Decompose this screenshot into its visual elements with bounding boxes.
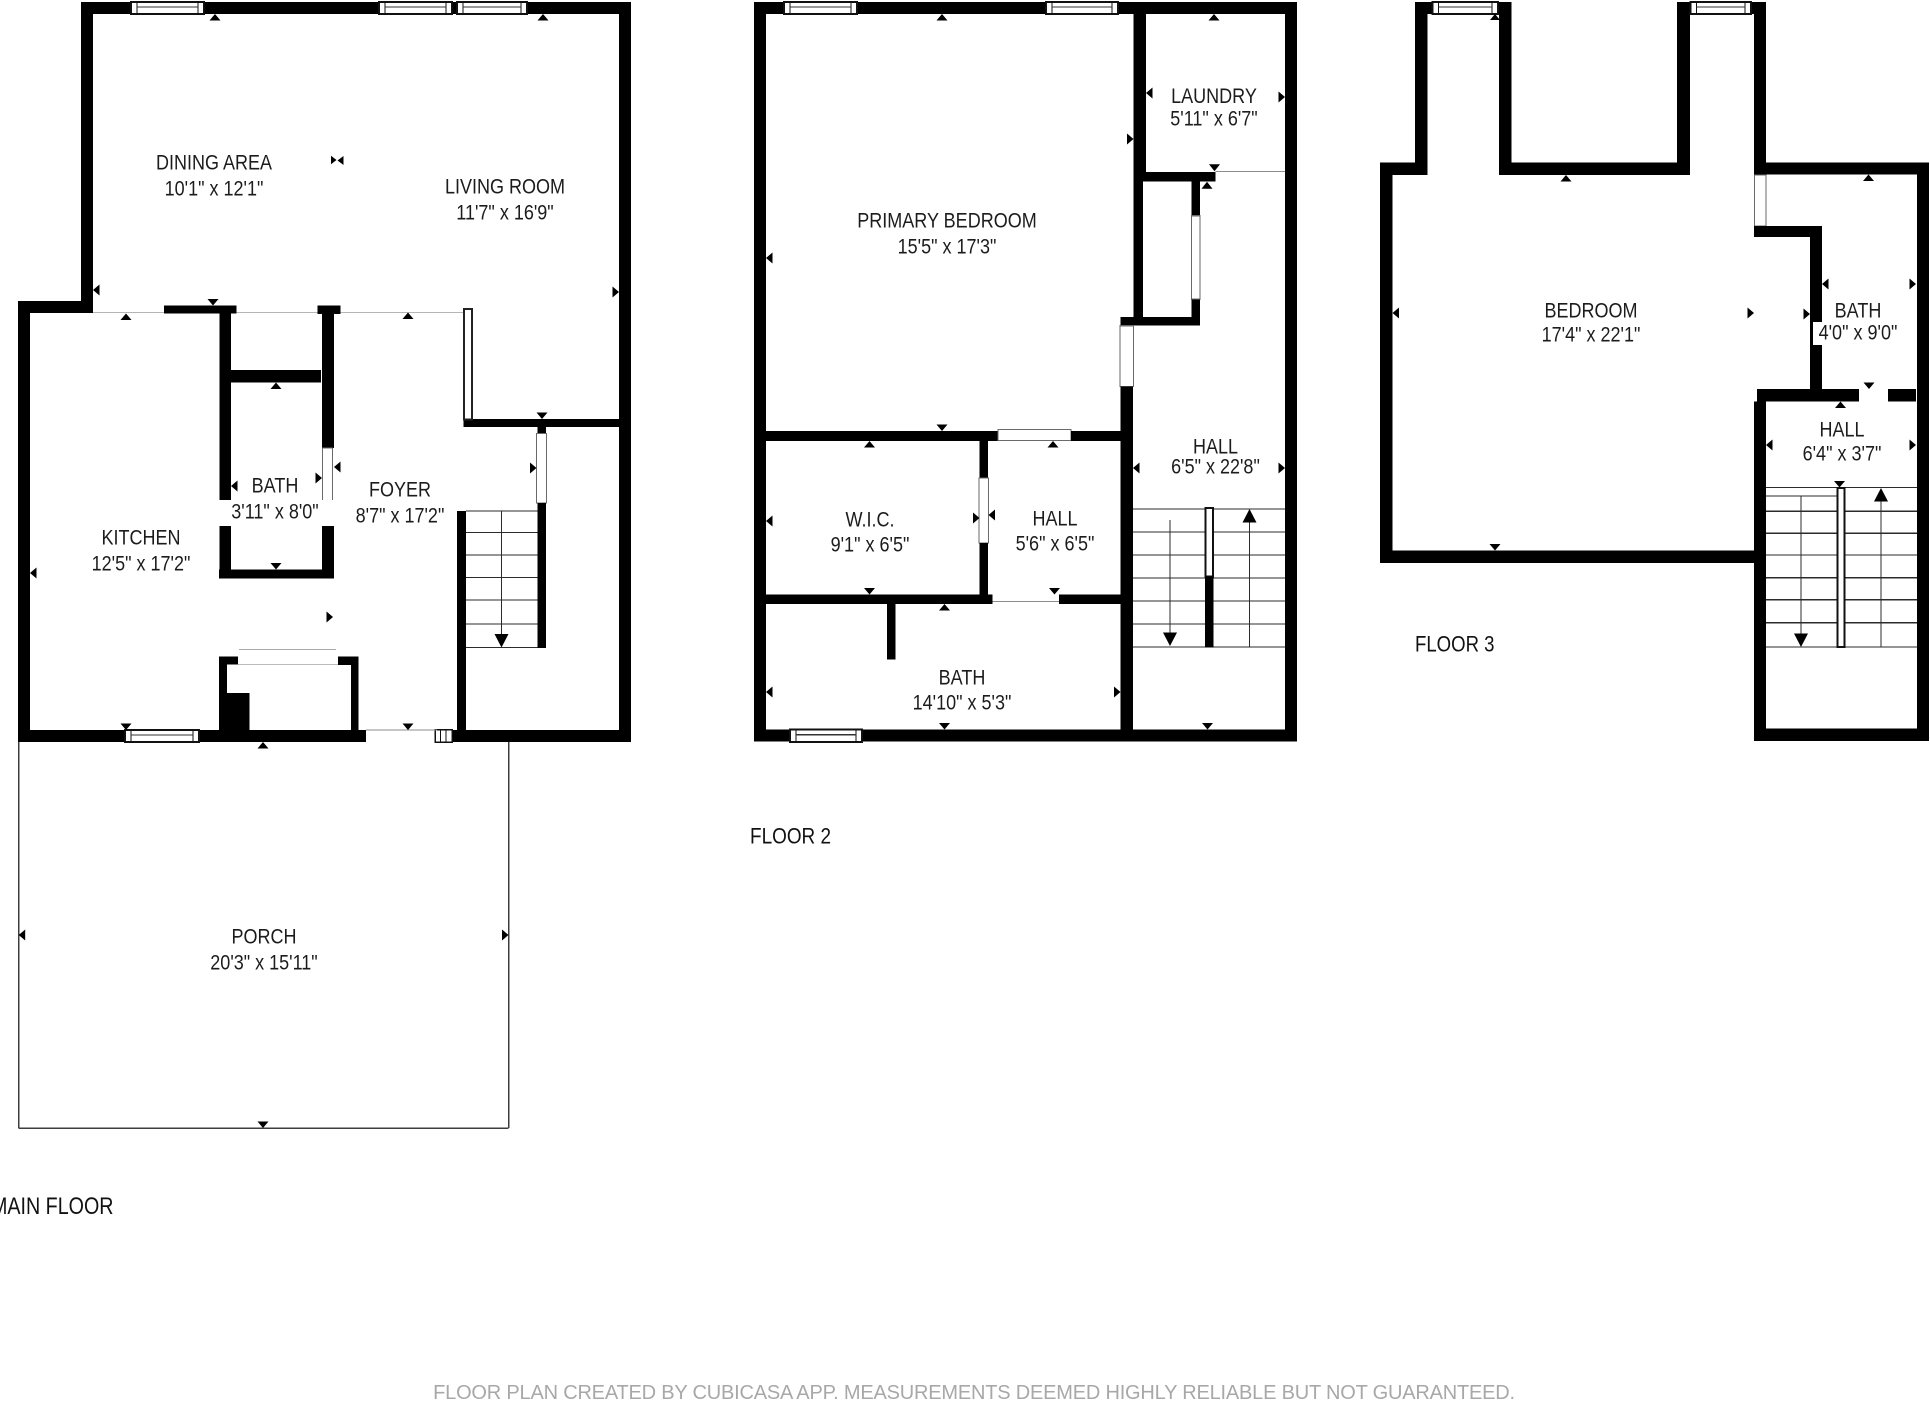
svg-text:HALL: HALL	[1033, 507, 1078, 531]
svg-text:BATH: BATH	[1835, 299, 1882, 323]
svg-text:KITCHEN: KITCHEN	[102, 526, 181, 550]
svg-text:20'3" x 15'11": 20'3" x 15'11"	[210, 951, 317, 975]
svg-text:8'7" x 17'2": 8'7" x 17'2"	[356, 504, 445, 528]
svg-text:MAIN FLOOR: MAIN FLOOR	[0, 1193, 114, 1220]
svg-text:FOYER: FOYER	[369, 478, 431, 502]
svg-text:4'0" x 9'0": 4'0" x 9'0"	[1819, 321, 1898, 345]
svg-text:10'1" x 12'1": 10'1" x 12'1"	[165, 177, 264, 201]
svg-text:5'11" x 6'7": 5'11" x 6'7"	[1170, 107, 1257, 131]
svg-text:LIVING ROOM: LIVING ROOM	[445, 175, 565, 199]
svg-text:DINING AREA: DINING AREA	[156, 151, 273, 175]
svg-text:11'7" x 16'9": 11'7" x 16'9"	[456, 201, 553, 225]
svg-text:BATH: BATH	[939, 666, 986, 690]
svg-text:6'4" x 3'7": 6'4" x 3'7"	[1803, 442, 1882, 466]
svg-text:BEDROOM: BEDROOM	[1545, 299, 1638, 323]
svg-text:9'1" x 6'5": 9'1" x 6'5"	[831, 533, 910, 557]
svg-text:14'10" x 5'3": 14'10" x 5'3"	[913, 691, 1012, 715]
svg-text:15'5" x 17'3": 15'5" x 17'3"	[898, 235, 997, 259]
svg-text:HALL: HALL	[1820, 418, 1865, 442]
svg-text:LAUNDRY: LAUNDRY	[1171, 84, 1257, 108]
svg-text:17'4" x 22'1": 17'4" x 22'1"	[1542, 323, 1641, 347]
svg-text:PRIMARY BEDROOM: PRIMARY BEDROOM	[857, 209, 1036, 233]
svg-text:12'5" x 17'2": 12'5" x 17'2"	[92, 552, 191, 576]
svg-text:PORCH: PORCH	[232, 925, 297, 949]
svg-text:FLOOR 3: FLOOR 3	[1415, 631, 1495, 656]
svg-text:W.I.C.: W.I.C.	[845, 508, 894, 532]
svg-text:3'11" x 8'0": 3'11" x 8'0"	[231, 500, 318, 524]
svg-text:BATH: BATH	[252, 474, 299, 498]
svg-text:6'5" x 22'8": 6'5" x 22'8"	[1171, 455, 1260, 479]
svg-text:FLOOR 2: FLOOR 2	[750, 823, 831, 848]
svg-text:5'6" x 6'5": 5'6" x 6'5"	[1016, 532, 1095, 556]
svg-text:FLOOR PLAN CREATED BY CUBICASA: FLOOR PLAN CREATED BY CUBICASA APP. MEAS…	[433, 1382, 1515, 1404]
